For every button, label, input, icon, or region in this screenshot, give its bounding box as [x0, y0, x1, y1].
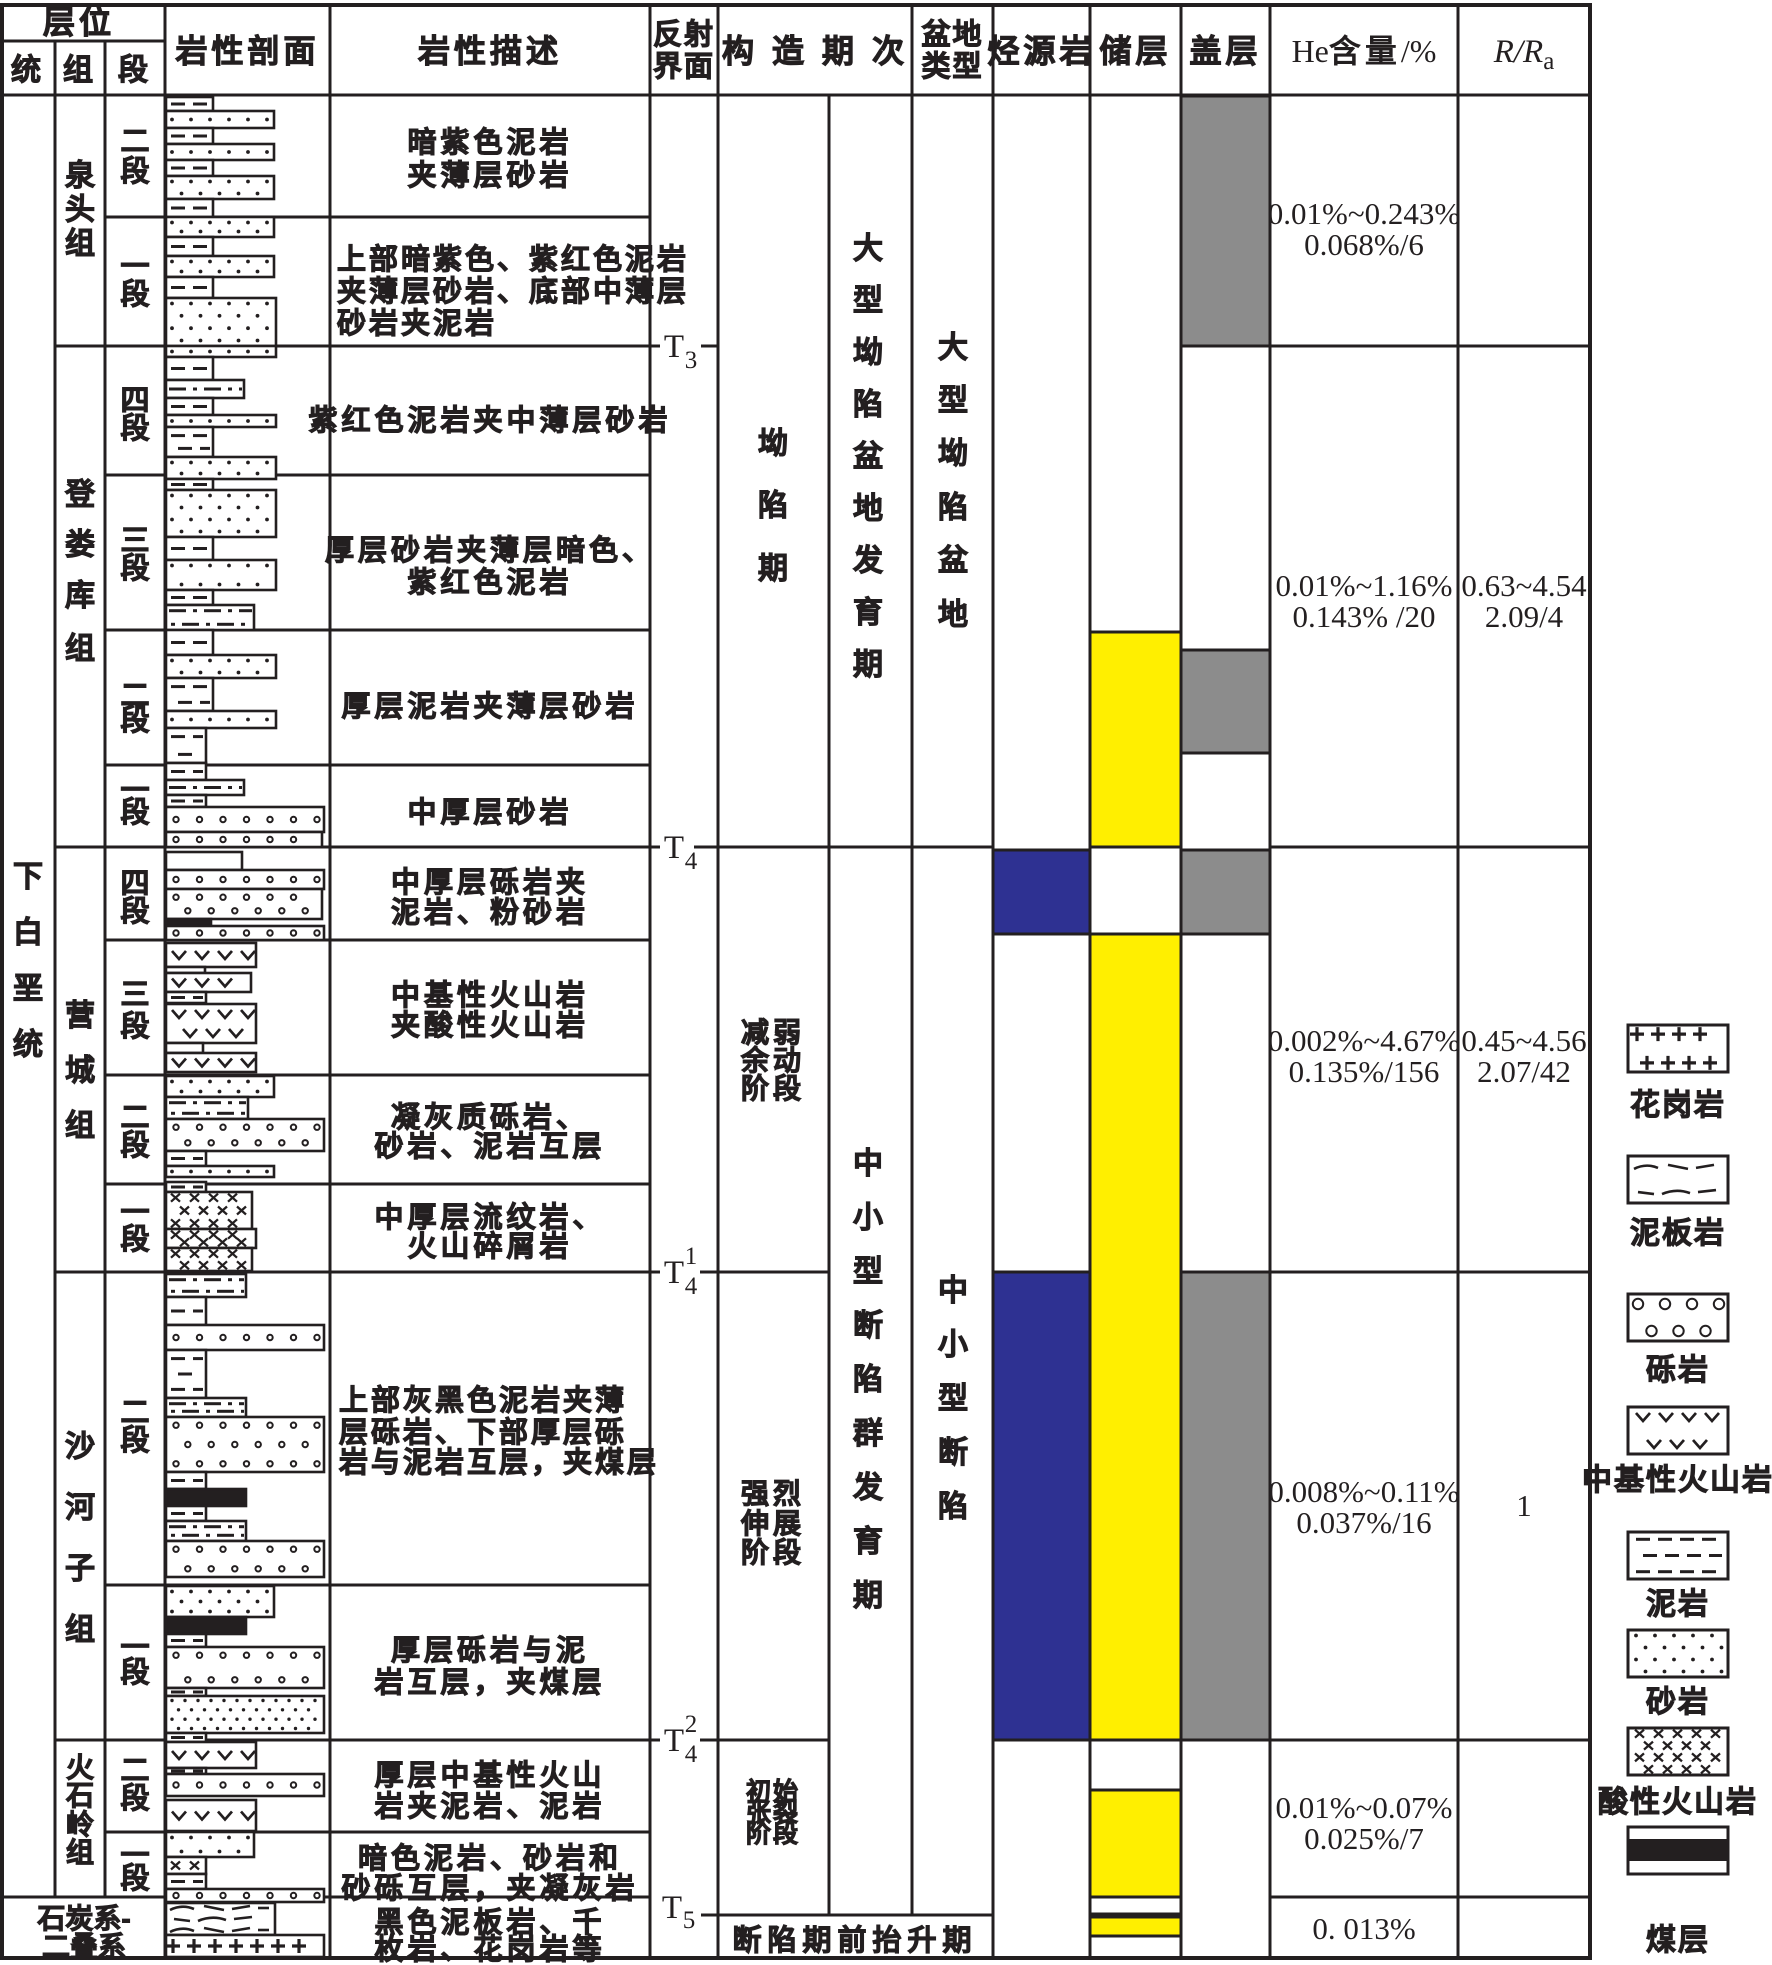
svg-text:岩性描述: 岩性描述 [418, 33, 562, 69]
svg-text:火: 火 [66, 1752, 94, 1783]
svg-text:泥岩、粉砂岩: 泥岩、粉砂岩 [391, 896, 589, 929]
svg-text:垩: 垩 [13, 973, 43, 1006]
svg-text:段: 段 [120, 1423, 149, 1457]
svg-text:头: 头 [65, 194, 95, 227]
svg-text:组: 组 [65, 1613, 95, 1647]
svg-text:厚层砂岩夹薄层暗色、: 厚层砂岩夹薄层暗色、 [325, 533, 655, 567]
svg-text:大: 大 [853, 233, 883, 266]
svg-text:段: 段 [120, 1009, 149, 1043]
svg-text:统: 统 [13, 1028, 43, 1062]
svg-text:0.002%~4.67%: 0.002%~4.67% [1268, 1023, 1460, 1058]
svg-text:泥板岩: 泥板岩 [1630, 1217, 1726, 1250]
svg-text:岩夹泥岩、泥岩: 岩夹泥岩、泥岩 [373, 1790, 605, 1823]
svg-text:段: 段 [118, 53, 152, 87]
svg-text:段: 段 [120, 551, 149, 585]
svg-text:段: 段 [120, 277, 149, 311]
svg-text:盖层: 盖层 [1189, 33, 1261, 69]
svg-text:大: 大 [938, 332, 968, 365]
svg-text:二叠系: 二叠系 [42, 1931, 126, 1962]
svg-text:期: 期 [758, 553, 788, 586]
svg-text:层位: 层位 [43, 4, 115, 40]
svg-text:界面: 界面 [653, 51, 715, 83]
svg-text:阶段: 阶段 [741, 1072, 805, 1104]
svg-text:0.068%/6: 0.068%/6 [1304, 227, 1424, 262]
svg-text:沙: 沙 [65, 1431, 95, 1464]
svg-text:中厚层砂岩: 中厚层砂岩 [407, 796, 572, 829]
svg-text:反射: 反射 [653, 18, 715, 51]
svg-text:型: 型 [938, 1383, 968, 1416]
svg-text:段: 段 [120, 703, 149, 737]
svg-text:段: 段 [120, 894, 149, 928]
svg-text:三: 三 [120, 979, 149, 1011]
svg-text:阶段: 阶段 [746, 1819, 800, 1848]
svg-text:减弱: 减弱 [741, 1017, 805, 1048]
svg-text:类型: 类型 [921, 50, 983, 83]
svg-text:夹薄层砂岩: 夹薄层砂岩 [407, 159, 572, 192]
svg-text:阶段: 阶段 [741, 1536, 805, 1568]
svg-text:夹薄层砂岩、底部中薄层: 夹薄层砂岩、底部中薄层 [337, 274, 689, 308]
svg-text:1: 1 [1516, 1488, 1532, 1523]
svg-text:厚层砾岩与泥: 厚层砾岩与泥 [391, 1634, 589, 1667]
svg-text:断陷期前抬升期: 断陷期前抬升期 [732, 1923, 977, 1957]
svg-text:余动: 余动 [740, 1044, 805, 1076]
svg-text:储层: 储层 [1099, 33, 1171, 69]
svg-text:群: 群 [853, 1418, 883, 1451]
svg-text:盆: 盆 [938, 545, 969, 578]
svg-text:组: 组 [66, 1837, 94, 1868]
svg-text:0.01%~1.16%: 0.01%~1.16% [1276, 568, 1453, 603]
svg-text:营: 营 [65, 1000, 95, 1033]
svg-text:登: 登 [64, 479, 96, 512]
svg-text:T: T [662, 1890, 682, 1926]
svg-text:地: 地 [853, 493, 883, 526]
svg-text:岩性剖面: 岩性剖面 [175, 33, 319, 69]
svg-text:二: 二 [120, 126, 149, 158]
svg-text:段: 段 [120, 154, 149, 188]
svg-text:中: 中 [938, 1275, 968, 1308]
svg-text:断: 断 [853, 1310, 883, 1343]
svg-text:娄: 娄 [65, 529, 95, 562]
svg-text:白: 白 [13, 917, 43, 950]
svg-text:地: 地 [938, 599, 968, 632]
svg-text:砂岩夹泥岩: 砂岩夹泥岩 [337, 307, 497, 340]
svg-text:段: 段 [120, 1861, 149, 1895]
svg-text:烃源岩: 烃源岩 [987, 33, 1095, 69]
svg-text:坳: 坳 [853, 337, 883, 370]
svg-text:期: 期 [853, 649, 883, 682]
svg-text:层砾岩、下部厚层砾: 层砾岩、下部厚层砾 [339, 1415, 627, 1449]
svg-text:石: 石 [65, 1780, 94, 1811]
svg-text:期: 期 [853, 1580, 883, 1613]
svg-text:段: 段 [120, 1222, 149, 1256]
svg-text:盆: 盆 [853, 441, 884, 474]
svg-text:砾岩: 砾岩 [1646, 1354, 1710, 1387]
svg-text:陷: 陷 [853, 1364, 883, 1397]
svg-text:段: 段 [120, 1655, 149, 1689]
svg-text:T: T [664, 329, 684, 365]
svg-text:夹酸性火山岩: 夹酸性火山岩 [391, 1009, 589, 1042]
svg-text:中: 中 [853, 1148, 883, 1181]
svg-text:砂砾互层，夹凝灰岩: 砂砾互层，夹凝灰岩 [341, 1872, 638, 1905]
svg-text:He含量/%: He含量/% [1292, 33, 1437, 69]
svg-text:4: 4 [685, 1273, 698, 1300]
svg-text:泥岩: 泥岩 [1646, 1588, 1710, 1621]
svg-text:中厚层砾岩夹: 中厚层砾岩夹 [391, 866, 589, 899]
svg-text:小: 小 [853, 1202, 883, 1235]
svg-text:T: T [664, 1255, 684, 1291]
svg-text:酸性火山岩: 酸性火山岩 [1598, 1786, 1758, 1819]
svg-text:坳: 坳 [758, 428, 788, 461]
svg-text:0.01%~0.243%: 0.01%~0.243% [1268, 196, 1460, 231]
svg-text:泉: 泉 [65, 159, 95, 193]
svg-text:岭: 岭 [66, 1809, 94, 1840]
svg-text:组: 组 [63, 53, 97, 87]
svg-text:T: T [664, 1723, 684, 1759]
svg-text:坳: 坳 [938, 438, 968, 471]
svg-text:育: 育 [853, 1525, 883, 1559]
svg-text:组: 组 [65, 632, 95, 666]
svg-text:T: T [664, 830, 684, 866]
svg-text:育: 育 [853, 596, 883, 630]
svg-text:库: 库 [65, 580, 95, 613]
svg-text:暗紫色泥岩: 暗紫色泥岩 [407, 125, 572, 159]
svg-text:枚岩、花岗岩等: 枚岩、花岗岩等 [374, 1932, 605, 1965]
svg-text:1: 1 [685, 1243, 698, 1270]
svg-text:紫红色泥岩: 紫红色泥岩 [407, 565, 572, 599]
svg-text:岩互层，夹煤层: 岩互层，夹煤层 [373, 1666, 605, 1699]
svg-text:0.135%/156: 0.135%/156 [1289, 1054, 1440, 1089]
svg-text:煤层: 煤层 [1646, 1924, 1710, 1957]
svg-text:段: 段 [120, 1781, 149, 1815]
svg-text:段: 段 [120, 411, 149, 445]
svg-text:暗色泥岩、砂岩和: 暗色泥岩、砂岩和 [358, 1841, 622, 1875]
svg-text:发: 发 [852, 545, 883, 578]
svg-text:构造期次: 构造期次 [722, 33, 922, 69]
svg-text:5: 5 [683, 1907, 696, 1934]
svg-text:中基性火山岩: 中基性火山岩 [1582, 1464, 1772, 1497]
svg-text:型: 型 [938, 385, 968, 418]
svg-text:上部暗紫色、紫红色泥岩: 上部暗紫色、紫红色泥岩 [337, 242, 689, 276]
svg-text:厚层中基性火山: 厚层中基性火山 [374, 1759, 605, 1792]
svg-text:型: 型 [853, 1256, 883, 1289]
svg-text:小: 小 [938, 1329, 968, 1362]
svg-text:紫红色泥岩夹中薄层砂岩: 紫红色泥岩夹中薄层砂岩 [308, 403, 671, 437]
svg-text:0.143% /20: 0.143% /20 [1293, 599, 1436, 634]
svg-text:4: 4 [685, 1741, 698, 1768]
svg-text:陷: 陷 [938, 1491, 968, 1524]
svg-text:段: 段 [120, 795, 149, 829]
svg-text:凝灰质砾岩、: 凝灰质砾岩、 [391, 1101, 589, 1134]
svg-text:组: 组 [65, 227, 95, 261]
svg-text:花岗岩: 花岗岩 [1630, 1089, 1726, 1122]
svg-text:厚层泥岩夹薄层砂岩: 厚层泥岩夹薄层砂岩 [341, 690, 638, 723]
svg-text:型: 型 [853, 285, 883, 318]
svg-text:0.025%/7: 0.025%/7 [1304, 1821, 1424, 1856]
svg-text:岩与泥岩互层，夹煤层: 岩与泥岩互层，夹煤层 [338, 1446, 659, 1479]
svg-text:0.008%~0.11%: 0.008%~0.11% [1268, 1474, 1459, 1509]
svg-text:陷: 陷 [758, 490, 788, 523]
svg-text:2: 2 [685, 1711, 698, 1738]
svg-text:中厚层流纹岩、: 中厚层流纹岩、 [374, 1201, 605, 1234]
svg-text:子: 子 [65, 1553, 95, 1586]
svg-text:火山碎屑岩: 火山碎屑岩 [407, 1230, 572, 1263]
svg-text:3: 3 [685, 347, 698, 374]
svg-text:段: 段 [120, 1128, 149, 1162]
svg-text:强烈: 强烈 [741, 1478, 805, 1509]
svg-text:0.45~4.56: 0.45~4.56 [1461, 1023, 1586, 1058]
svg-text:陷: 陷 [938, 492, 968, 525]
svg-text:伸展: 伸展 [740, 1508, 805, 1539]
svg-text:组: 组 [65, 1109, 95, 1143]
svg-text:中基性火山岩: 中基性火山岩 [391, 979, 589, 1012]
svg-text:砂岩、泥岩互层: 砂岩、泥岩互层 [374, 1130, 605, 1163]
svg-text:2.09/4: 2.09/4 [1485, 599, 1564, 634]
svg-text:0.037%/16: 0.037%/16 [1296, 1505, 1431, 1540]
svg-text:统: 统 [11, 53, 45, 87]
svg-text:上部灰黑色泥岩夹薄: 上部灰黑色泥岩夹薄 [339, 1383, 627, 1417]
svg-text:0. 013%: 0. 013% [1312, 1911, 1415, 1946]
svg-text:城: 城 [65, 1055, 95, 1088]
svg-text:河: 河 [65, 1492, 95, 1525]
svg-text:断: 断 [938, 1437, 968, 1470]
svg-text:砂岩: 砂岩 [1646, 1686, 1710, 1719]
svg-text:陷: 陷 [853, 389, 883, 422]
svg-text:2.07/42: 2.07/42 [1477, 1054, 1571, 1089]
svg-text:0.01%~0.07%: 0.01%~0.07% [1276, 1790, 1453, 1825]
svg-text:盆地: 盆地 [921, 18, 983, 51]
svg-text:下: 下 [13, 861, 43, 894]
svg-text:4: 4 [685, 848, 698, 875]
svg-text:石炭系-: 石炭系- [36, 1903, 130, 1934]
svg-text:0.63~4.54: 0.63~4.54 [1461, 568, 1587, 603]
svg-text:发: 发 [852, 1472, 883, 1505]
